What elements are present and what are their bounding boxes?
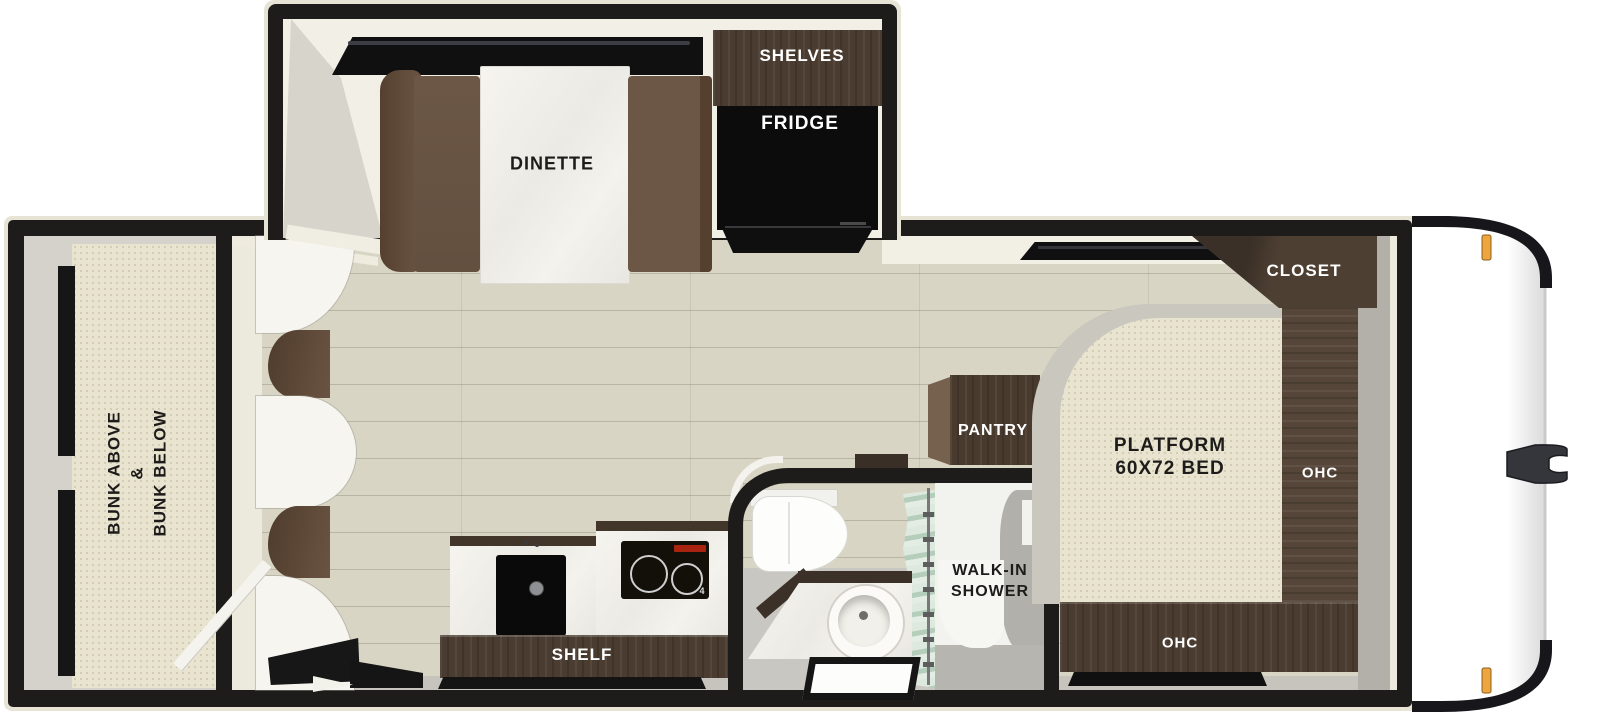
kitchen-shelf-label: SHELF <box>552 645 613 665</box>
dinette-bench-left <box>414 76 480 272</box>
fridge-handle <box>840 222 866 225</box>
pantry-label: PANTRY <box>958 422 1028 440</box>
ohc-side-label: OHC <box>1302 465 1338 482</box>
bathroom-door-sill <box>855 454 908 468</box>
ohc-foot-label: OHC <box>1162 635 1198 652</box>
bunk-window-upper <box>58 266 75 456</box>
faucet-dot-1 <box>524 541 528 545</box>
sink-drain <box>529 581 544 596</box>
bedroom-rear-window <box>1020 242 1230 260</box>
burner-large <box>630 555 668 593</box>
shelves-cabinet <box>713 30 882 106</box>
bunk-label-line3: BUNK BELOW <box>149 409 172 536</box>
ohc-foot-cabinet <box>1060 602 1358 672</box>
ohc-side-cabinet <box>1282 300 1358 610</box>
pantry-cabinet <box>950 375 1040 465</box>
bedroom-rear-window-glass <box>1038 246 1216 249</box>
dinette-window-light <box>348 41 690 45</box>
cooktop-controls <box>674 545 706 552</box>
front-wall-face <box>1390 236 1397 690</box>
cooktop-mark: 4 <box>699 586 704 596</box>
bedroom-front-window <box>1068 672 1267 686</box>
bed-label-line2: 60X72 BED <box>1115 458 1224 480</box>
bunk-cushion-upper <box>268 330 330 398</box>
bunk-label-line1: BUNK ABOVE <box>103 409 126 536</box>
fridge-base-line <box>725 226 871 228</box>
bed-label-line1: PLATFORM <box>1114 435 1226 457</box>
floorplan-canvas: BUNK ABOVE & BUNK BELOW 4 SHELF WAL <box>0 0 1600 720</box>
fridge-label: FRIDGE <box>761 113 839 135</box>
pantry-side-face <box>928 377 950 465</box>
shelves-label: SHELVES <box>759 46 844 66</box>
dinette-bench-right <box>628 76 712 272</box>
marker-light-top <box>1482 235 1491 260</box>
kitchen-window <box>438 677 706 689</box>
kitchen-sink <box>496 555 566 636</box>
closet-label: CLOSET <box>1267 261 1342 281</box>
dinette-label: DINETTE <box>510 154 594 175</box>
marker-light-bottom <box>1482 668 1491 693</box>
trailer-nose <box>1412 216 1600 712</box>
dinette-table <box>480 66 630 284</box>
bathroom-wall <box>728 468 1059 690</box>
bunk-label-line2: & <box>126 409 149 536</box>
fridge-base <box>717 228 878 253</box>
bunk-window-lower <box>58 490 75 676</box>
faucet-dot-2 <box>535 543 539 547</box>
burner-small <box>671 563 703 595</box>
bunk-cushion-lower <box>268 506 330 578</box>
hitch-coupler <box>1507 445 1567 483</box>
bunk-label: BUNK ABOVE & BUNK BELOW <box>103 409 172 536</box>
